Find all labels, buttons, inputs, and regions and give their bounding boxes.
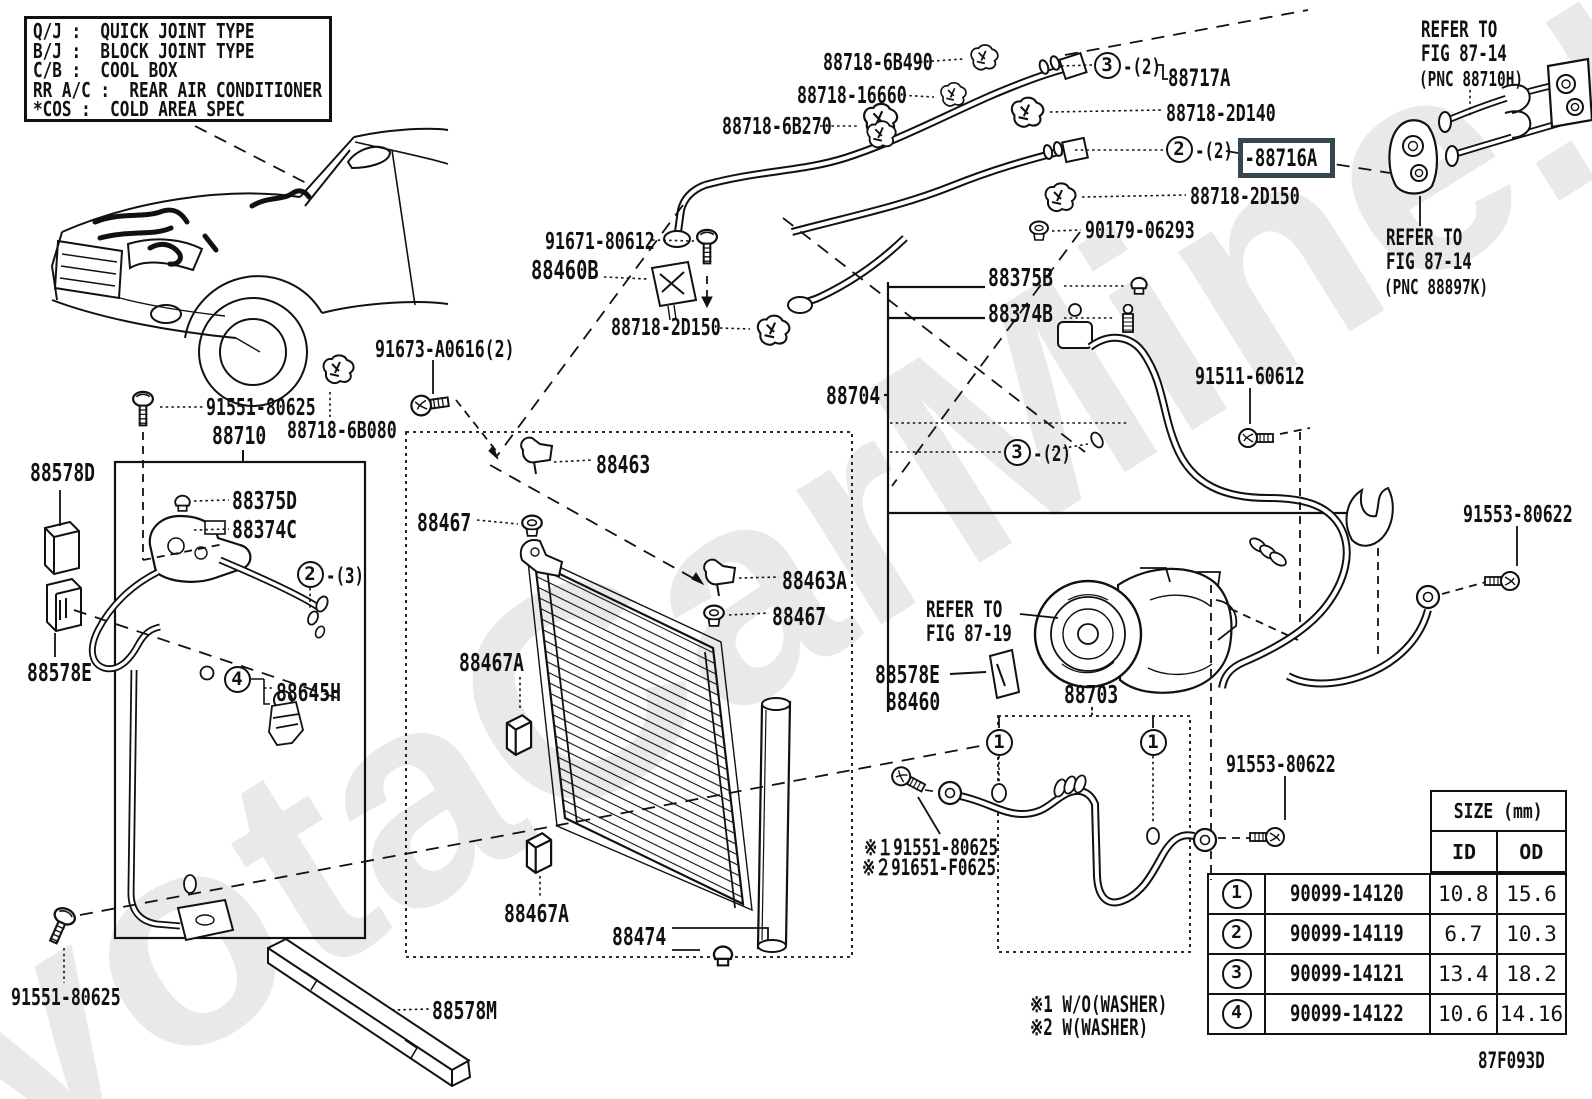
callout-2-mid[interactable]: 2 bbox=[1166, 136, 1193, 163]
refer-fig8714-b3: (PNC 88897K) bbox=[1384, 277, 1488, 297]
part-88645h[interactable]: 88645H bbox=[276, 680, 341, 705]
part-88578d[interactable]: 88578D bbox=[30, 460, 95, 485]
part-88718-6b080[interactable]: 88718-6B080 bbox=[287, 420, 397, 443]
part-90179-06293[interactable]: 90179-06293 bbox=[1085, 220, 1195, 243]
part-88463[interactable]: 88463 bbox=[596, 452, 650, 477]
refer-fig8719-1: REFER TO bbox=[926, 600, 1002, 622]
diagram-code: 87F093D bbox=[1478, 1051, 1545, 1073]
part-91553-80622-b[interactable]: 91553-80622 bbox=[1226, 754, 1336, 777]
part-88460b[interactable]: 88460B bbox=[531, 258, 599, 284]
part-88703[interactable]: 88703 bbox=[1064, 682, 1118, 707]
part-88718-2d150-mid[interactable]: 88718-2D150 bbox=[611, 317, 721, 340]
part-88578e-right[interactable]: 88578E bbox=[875, 662, 940, 687]
callout-1-b[interactable]: 1 bbox=[1140, 729, 1167, 756]
refer-fig8714-b1: REFER TO bbox=[1386, 228, 1462, 250]
part-88375d[interactable]: 88375D bbox=[232, 488, 297, 513]
part-88374c[interactable]: 88374C bbox=[232, 517, 297, 542]
part-88710[interactable]: 88710 bbox=[212, 423, 266, 448]
part-88718-6b490[interactable]: 88718-6B490 bbox=[823, 52, 933, 75]
part-88717a[interactable]: 88717A bbox=[1168, 66, 1230, 90]
part-91551-80625-b[interactable]: 91551-80625 bbox=[11, 987, 121, 1010]
refer-fig8719-2: FIG 87-19 bbox=[926, 624, 1012, 646]
part-88718-6b270[interactable]: 88718-6B270 bbox=[722, 116, 832, 139]
refer-fig8714-a1: REFER TO bbox=[1421, 20, 1497, 42]
part-88375b[interactable]: 88375B bbox=[988, 265, 1053, 290]
part-88374b[interactable]: 88374B bbox=[988, 301, 1053, 326]
callout-4-left[interactable]: 4 bbox=[224, 666, 251, 693]
callout-3-box-suffix: -(2) bbox=[1033, 442, 1071, 466]
part-88704[interactable]: 88704 bbox=[826, 383, 880, 408]
callout-2-mid-suffix: -(2) bbox=[1195, 139, 1233, 163]
part-labels-layer: 88718-6B49088718-1666088718-6B27088717A8… bbox=[0, 0, 1592, 1099]
part-91673-a0616[interactable]: 91673-A0616(2) bbox=[375, 339, 515, 362]
part-91511-60612[interactable]: 91511-60612 bbox=[1195, 366, 1305, 389]
part-88718-16660[interactable]: 88718-16660 bbox=[797, 85, 907, 108]
part-88467a-top[interactable]: 88467A bbox=[459, 650, 524, 675]
part-88460[interactable]: 88460 bbox=[886, 689, 940, 714]
callout-3-box[interactable]: 3 bbox=[1004, 439, 1031, 466]
part-note-91651-f0625[interactable]: ※２91651-F0625 bbox=[862, 858, 996, 880]
part-88578m[interactable]: 88578M bbox=[432, 998, 497, 1023]
callout-2-left[interactable]: 2 bbox=[297, 561, 324, 588]
part-88474[interactable]: 88474 bbox=[612, 924, 666, 949]
refer-fig8714-b2: FIG 87-14 bbox=[1386, 252, 1472, 274]
part-91671-80612[interactable]: 91671-80612 bbox=[545, 231, 655, 254]
part-91551-80625-a[interactable]: 91551-80625 bbox=[206, 397, 316, 420]
refer-fig8714-a2: FIG 87-14 bbox=[1421, 44, 1507, 66]
callout-1-a[interactable]: 1 bbox=[986, 729, 1013, 756]
callout-3-top[interactable]: 3 bbox=[1094, 52, 1121, 79]
callout-3-top-suffix: -(2) bbox=[1123, 55, 1161, 79]
part-88718-2d150-top[interactable]: 88718-2D150 bbox=[1190, 186, 1300, 209]
part-88718-2d140[interactable]: 88718-2D140 bbox=[1166, 103, 1276, 126]
note-washer-2: ※2 W(WASHER) bbox=[1030, 1018, 1148, 1040]
part-88467-left[interactable]: 88467 bbox=[417, 510, 471, 535]
part-88467-right[interactable]: 88467 bbox=[772, 604, 826, 629]
part-88467a-bottom[interactable]: 88467A bbox=[504, 901, 569, 926]
part-88578e-left[interactable]: 88578E bbox=[27, 660, 92, 685]
refer-fig8714-a3: (PNC 88710H) bbox=[1419, 69, 1523, 89]
part-91553-80622-a[interactable]: 91553-80622 bbox=[1463, 504, 1573, 527]
note-washer-1: ※1 W/O(WASHER) bbox=[1030, 995, 1167, 1017]
part-88463a[interactable]: 88463A bbox=[782, 568, 847, 593]
parts-diagram-page: ToyotaCarMine.ru bbox=[0, 0, 1592, 1099]
callout-2-left-suffix: -(3) bbox=[326, 564, 364, 588]
